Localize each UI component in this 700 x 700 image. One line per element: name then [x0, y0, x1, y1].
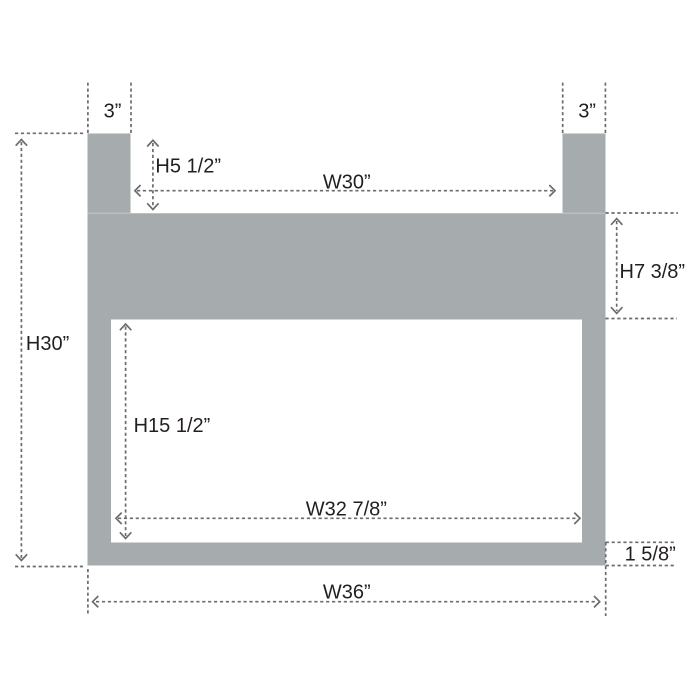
- svg-text:W30”: W30”: [323, 172, 371, 194]
- svg-text:3”: 3”: [104, 101, 122, 123]
- svg-text:H5 1/2”: H5 1/2”: [155, 156, 221, 178]
- svg-text:3”: 3”: [578, 101, 596, 123]
- svg-text:W36”: W36”: [323, 582, 371, 604]
- svg-text:W32 7/8”: W32 7/8”: [306, 498, 387, 520]
- svg-text:H15 1/2”: H15 1/2”: [134, 415, 211, 437]
- svg-text:H7 3/8”: H7 3/8”: [620, 261, 686, 283]
- svg-text:1 5/8”: 1 5/8”: [625, 543, 676, 565]
- svg-text:H30”: H30”: [26, 333, 69, 355]
